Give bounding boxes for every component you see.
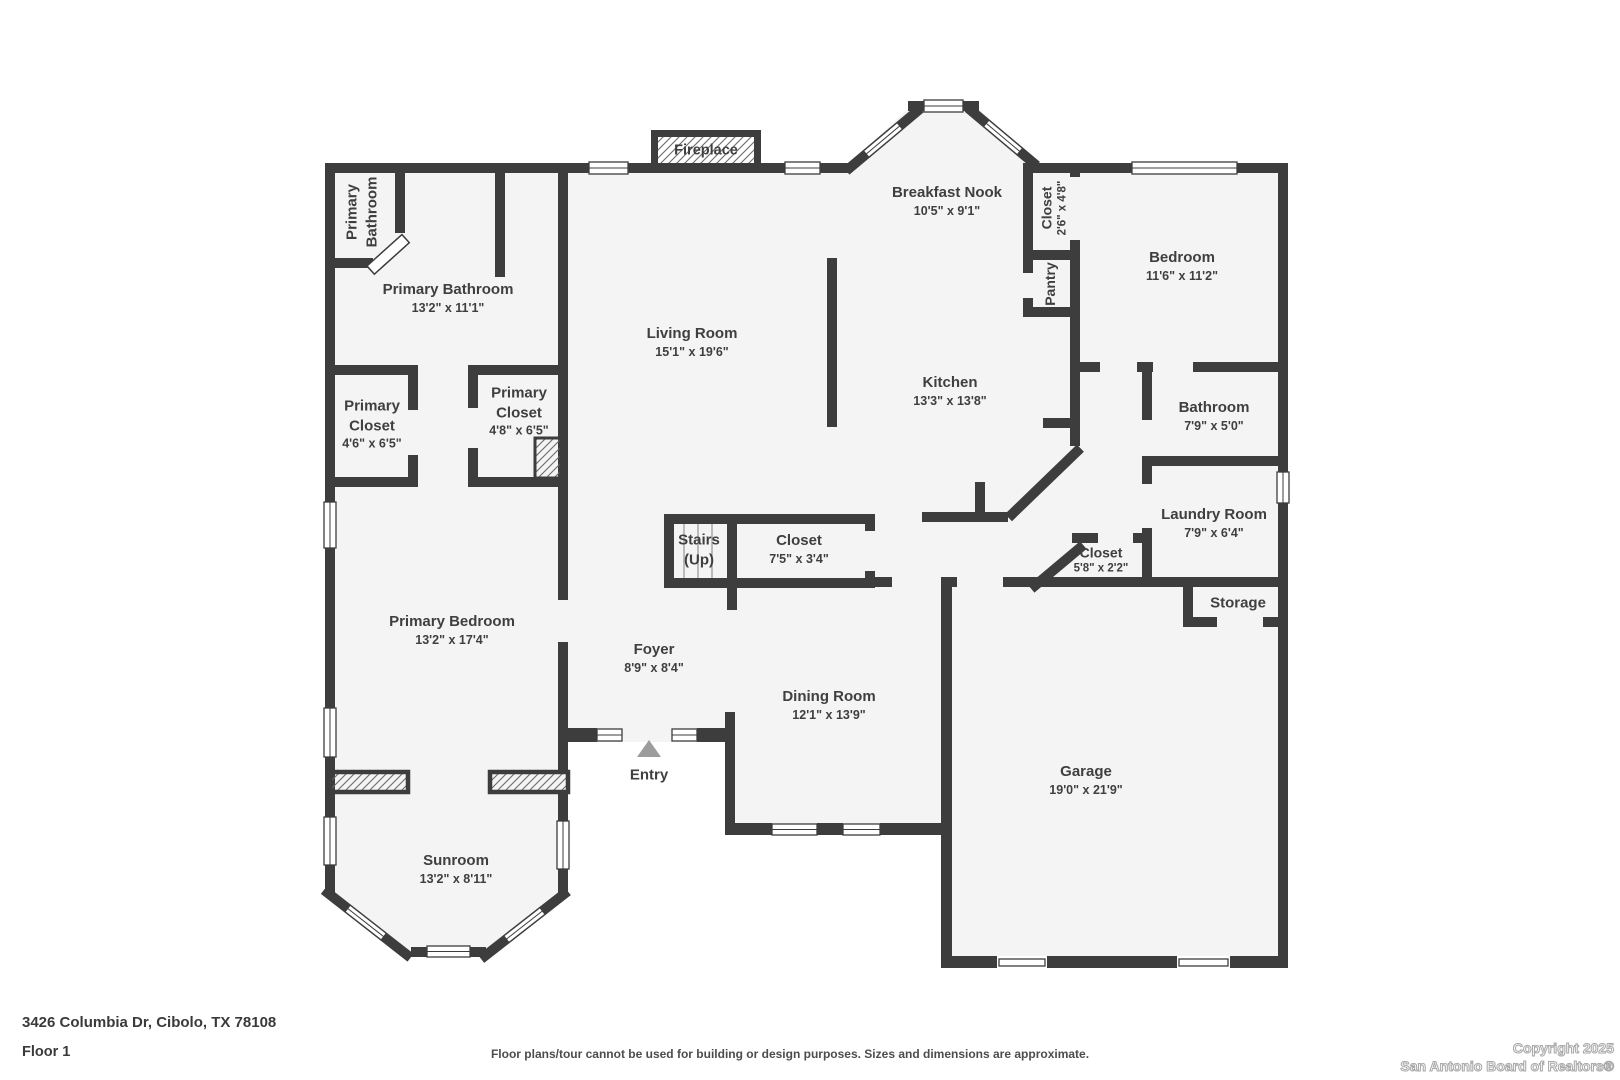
room-label-bedroom: Bedroom 11'6" x 11'2" <box>1146 248 1218 284</box>
entry-label: Entry <box>630 765 668 785</box>
room-label-foyer: Foyer 8'9" x 8'4" <box>624 640 684 676</box>
room-label-primary-closet-2: Primary Closet 4'8" x 6'5" <box>476 383 562 438</box>
room-label-primary-bathroom: Primary Bathroom 13'2" x 11'1" <box>383 280 514 316</box>
room-label-sunroom: Sunroom 13'2" x 8'11" <box>420 851 493 887</box>
room-label-garage: Garage 19'0" x 21'9" <box>1049 762 1122 798</box>
room-label-laundry-room: Laundry Room 7'9" x 6'4" <box>1161 505 1267 541</box>
room-label-bathroom: Bathroom 7'9" x 5'0" <box>1179 398 1250 434</box>
disclaimer-text: Floor plans/tour cannot be used for buil… <box>491 1047 1089 1061</box>
copyright-line2: San Antonio Board of Realtors® <box>1400 1058 1614 1076</box>
room-label-closet-foyer: Closet 7'5" x 3'4" <box>769 531 829 567</box>
room-label-primary-bathroom-vertical: Primary Bathroom <box>343 169 382 255</box>
room-label-pantry: Pantry <box>1041 262 1059 306</box>
property-address: 3426 Columbia Dr, Cibolo, TX 78108 <box>22 1014 276 1031</box>
floor-plan-page: Primary Bathroom Primary Bathroom 13'2" … <box>0 0 1620 1080</box>
room-label-living-room: Living Room 15'1" x 19'6" <box>647 324 738 360</box>
entry-direction-icon <box>637 740 661 757</box>
copyright-line1: Copyright 2025 <box>1400 1040 1614 1058</box>
copyright-notice: Copyright 2025 San Antonio Board of Real… <box>1400 1040 1614 1075</box>
room-label-dining-room: Dining Room 12'1" x 13'9" <box>782 687 875 723</box>
room-label-primary-bedroom: Primary Bedroom 13'2" x 17'4" <box>389 612 515 648</box>
room-label-breakfast-nook: Breakfast Nook 10'5" x 9'1" <box>892 183 1002 219</box>
room-label-storage: Storage <box>1210 593 1266 613</box>
room-label-stairs: Stairs (Up) <box>672 531 726 570</box>
room-label-closet-hall-diag: Closet 5'8" x 2'2" <box>1074 543 1129 576</box>
room-label-kitchen: Kitchen 13'3" x 13'8" <box>913 373 986 409</box>
fireplace-label: Fireplace <box>674 142 738 161</box>
room-label-closet-bedroom: Closet 2'6" x 4'8" <box>1037 181 1070 236</box>
floor-number: Floor 1 <box>22 1044 70 1060</box>
room-label-primary-closet-1: Primary Closet 4'6" x 6'5" <box>329 396 415 451</box>
